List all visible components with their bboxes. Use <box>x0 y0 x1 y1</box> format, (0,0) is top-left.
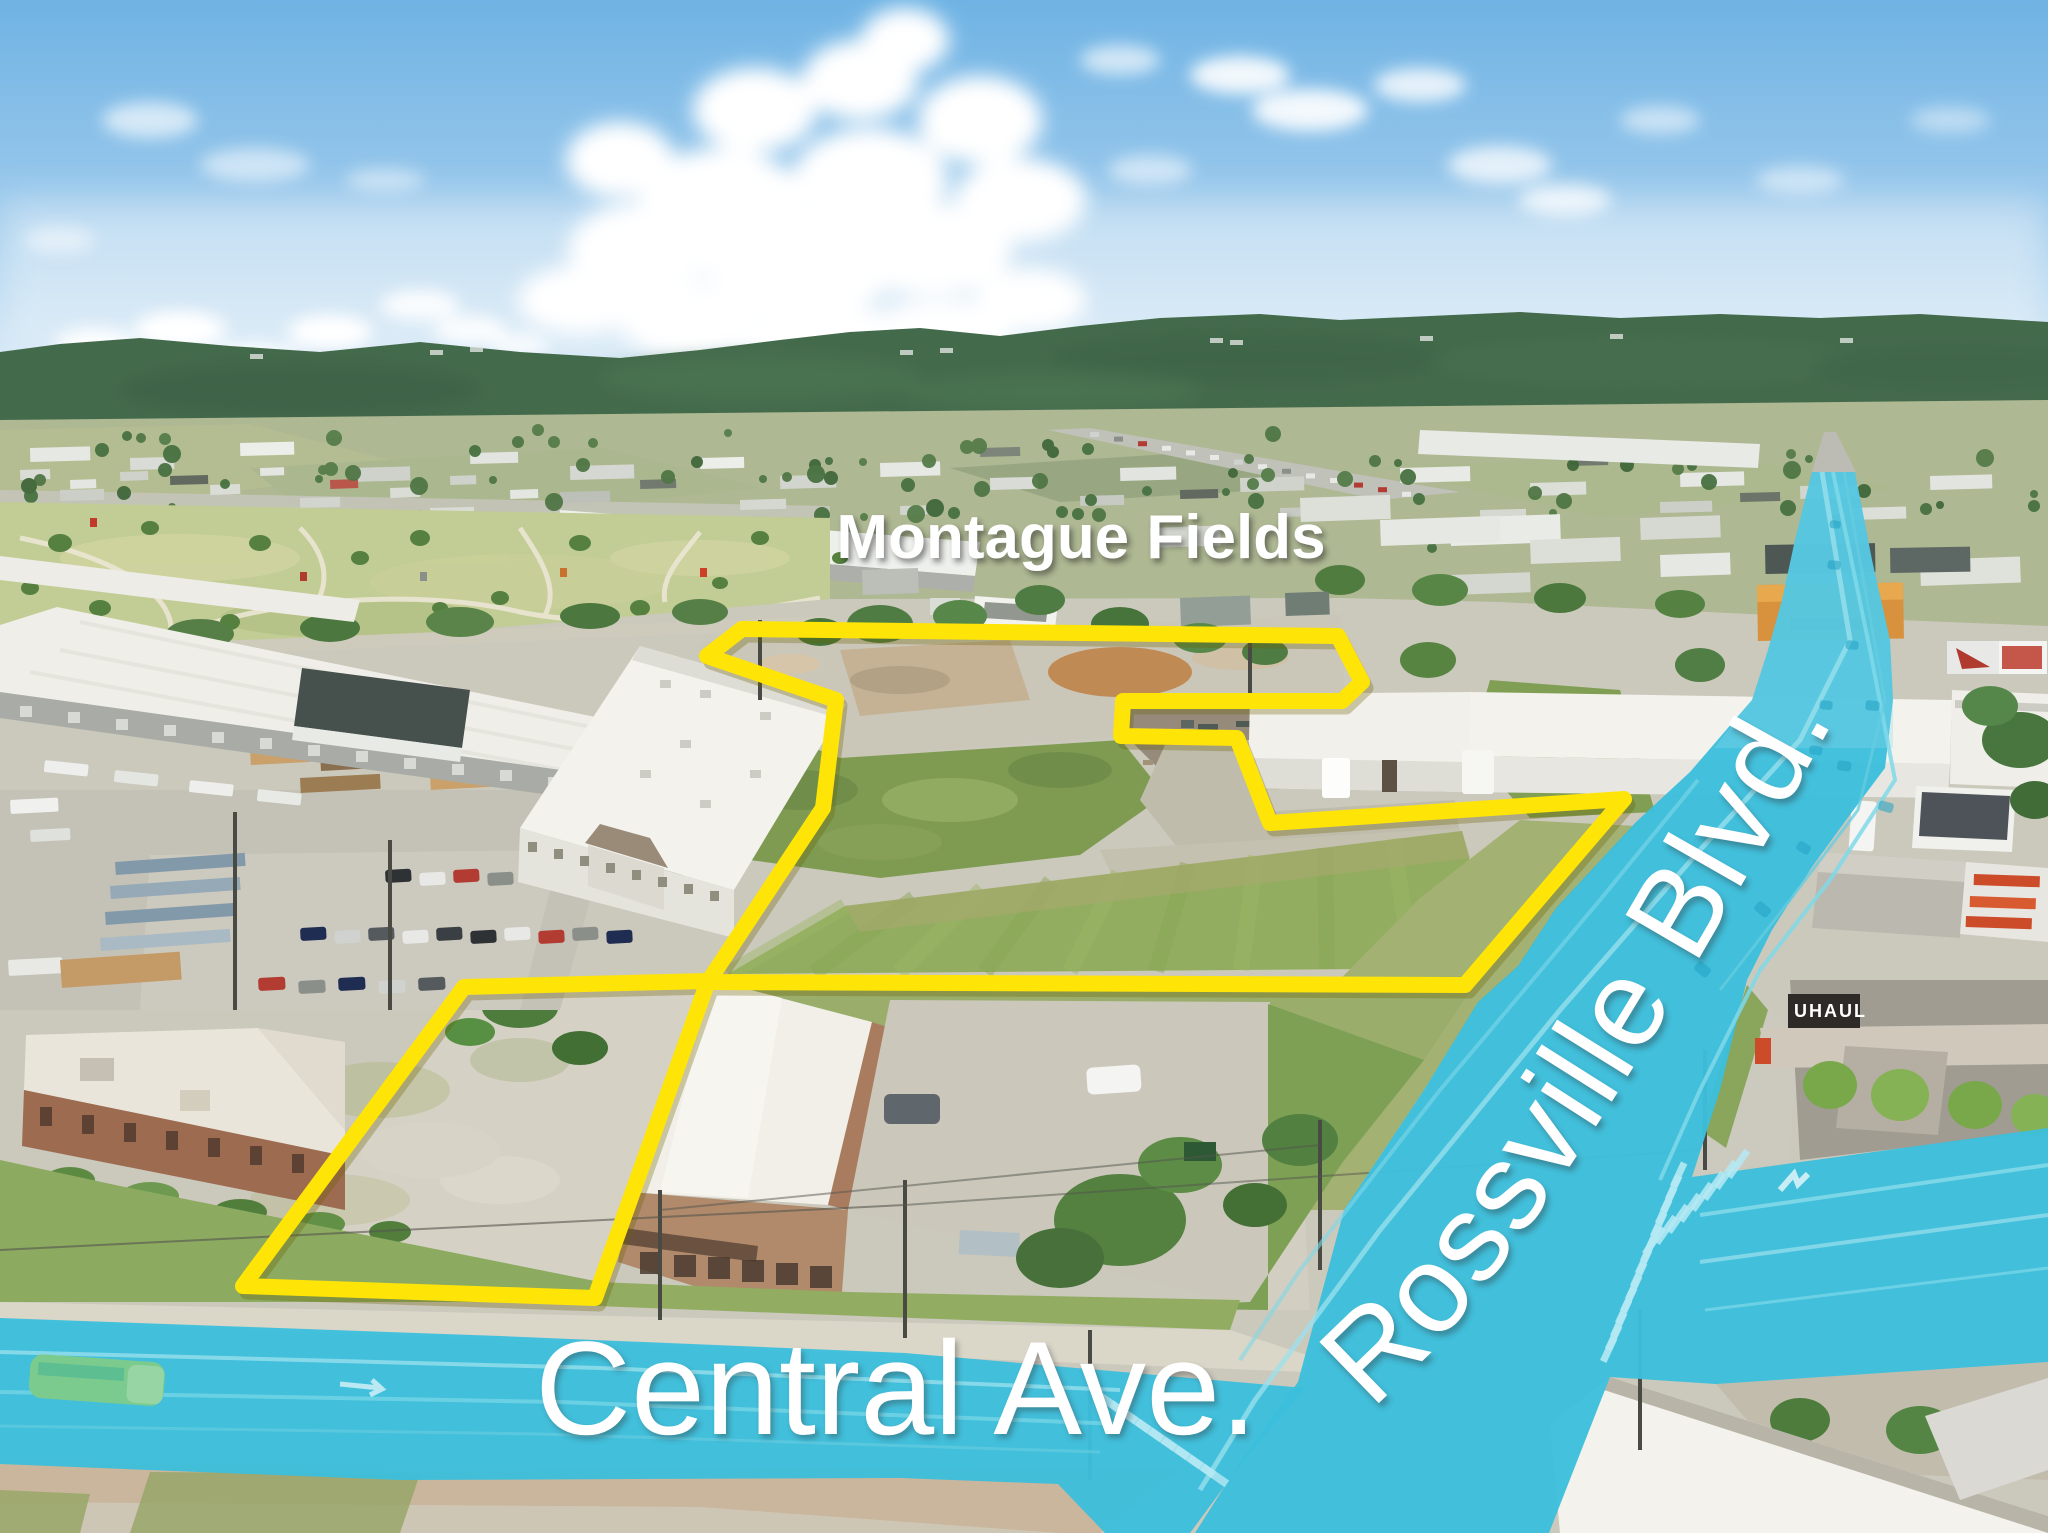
svg-text:Central Ave.: Central Ave. <box>535 1315 1257 1463</box>
svg-text:Montague Fields: Montague Fields <box>836 503 1325 572</box>
svg-text:UHAUL: UHAUL <box>1794 1001 1867 1021</box>
